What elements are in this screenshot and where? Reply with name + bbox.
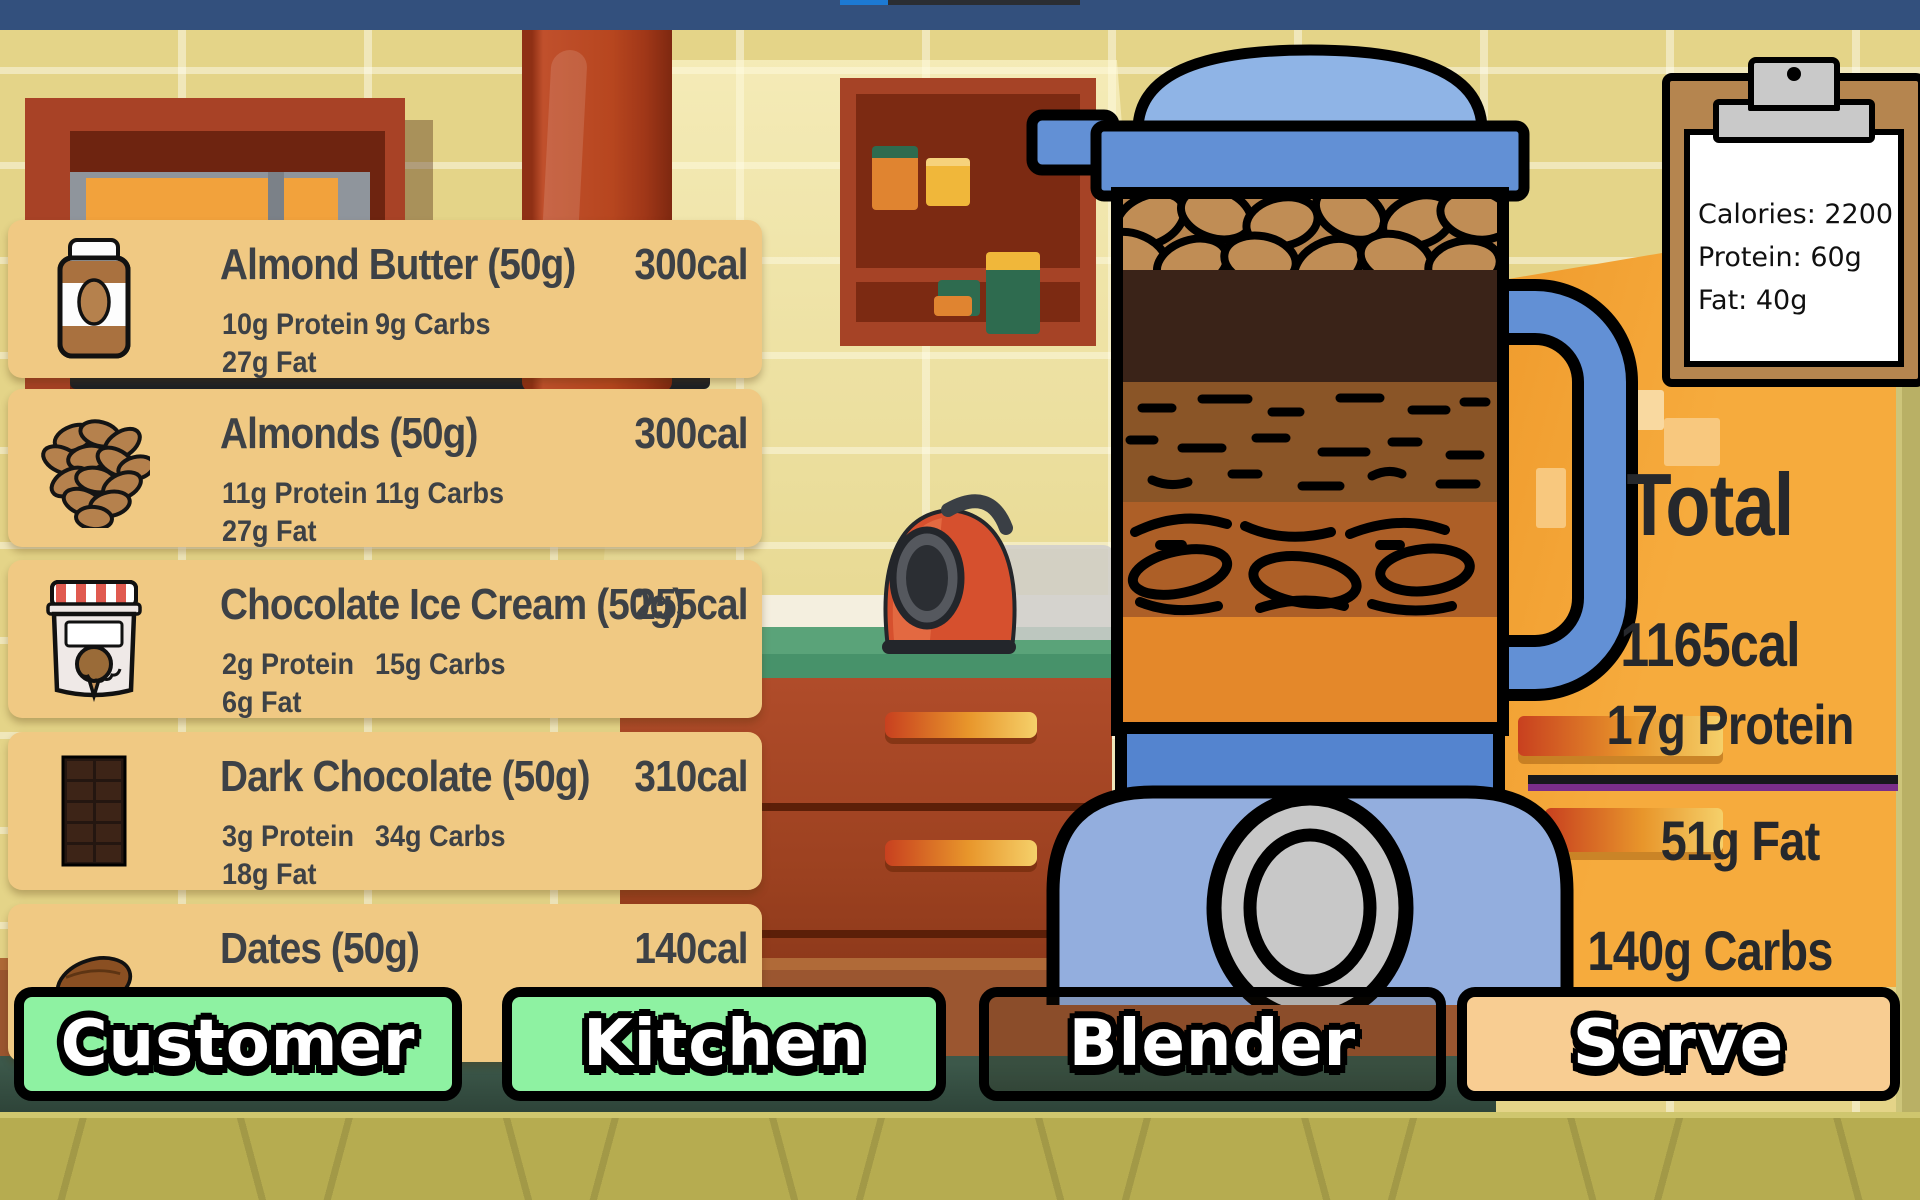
almond-butter-jar-icon xyxy=(38,232,150,366)
ingredient-name: Almonds (50g) xyxy=(220,409,477,459)
floor xyxy=(0,1112,1920,1200)
ingredient-card-chocolate-ice-cream[interactable]: Chocolate Ice Cream (50g) 255cal 2g Prot… xyxy=(8,560,762,718)
blender-tab-button[interactable]: Blender xyxy=(979,987,1446,1101)
shelf-jar-orange xyxy=(872,146,918,210)
order-calories: Calories: 2200 xyxy=(1698,193,1893,236)
clipboard-clip-top xyxy=(1748,57,1840,111)
shelf-cup-yellow xyxy=(926,158,970,206)
totals-calories: 1165cal xyxy=(1567,612,1853,680)
ingredient-calories: 310cal xyxy=(635,752,748,802)
ingredient-protein: 3g Protein xyxy=(222,820,375,854)
ingredient-name: Dark Chocolate (50g) xyxy=(220,752,590,802)
ingredient-card-almonds[interactable]: Almonds (50g) 300cal 11g Protein11g Carb… xyxy=(8,389,762,547)
ingredient-card-almond-butter[interactable]: Almond Butter (50g) 300cal 10g Protein9g… xyxy=(8,220,762,378)
totals-protein: 17g Protein xyxy=(1570,690,1889,760)
lid-dome xyxy=(1138,50,1482,128)
kitchen-tab-button[interactable]: Kitchen xyxy=(502,987,946,1101)
ingredient-name: Dates (50g) xyxy=(220,924,419,974)
ingredient-carbs: 34g Carbs xyxy=(375,820,506,853)
ingredient-card-dark-chocolate[interactable]: Dark Chocolate (50g) 310cal 3g Protein34… xyxy=(8,732,762,890)
ingredient-protein: 2g Protein xyxy=(222,648,375,682)
order-clipboard: Calories: 2200 Protein: 60g Fat: 40g xyxy=(1662,73,1920,387)
blender-collar xyxy=(1121,728,1499,794)
serve-button-label: Serve xyxy=(1573,1007,1784,1081)
blender-tab-label: Blender xyxy=(1069,1007,1356,1081)
ingredient-protein: 10g Protein xyxy=(222,308,375,342)
customer-tab-label: Customer xyxy=(61,1007,416,1081)
shelf-box-orange xyxy=(934,296,972,316)
kettle xyxy=(870,470,1030,660)
clip-hole xyxy=(1787,67,1801,81)
ingredient-fat: 6g Fat xyxy=(222,686,302,720)
ingredient-carbs: 9g Carbs xyxy=(375,308,491,341)
ingredient-name: Chocolate Ice Cream (50g) xyxy=(220,580,684,630)
ingredient-fat: 27g Fat xyxy=(222,346,317,380)
base-dial-inner xyxy=(1250,835,1370,981)
ingredient-calories: 255cal xyxy=(635,580,748,630)
totals-fat: 51g Fat xyxy=(1589,806,1891,876)
chocolate-bar-icon xyxy=(38,744,150,878)
ice-cream-tub-icon xyxy=(38,572,150,706)
ingredient-calories: 300cal xyxy=(635,240,748,290)
lid-band xyxy=(1096,126,1524,196)
serve-button[interactable]: Serve xyxy=(1457,987,1900,1101)
game-screen: Total 1165cal 17g Protein 51g Fat 140g C… xyxy=(0,0,1920,1200)
top-progress-dark xyxy=(888,0,1080,5)
ingredient-fat: 18g Fat xyxy=(222,858,317,892)
order-fat: Fat: 40g xyxy=(1698,279,1893,322)
ingredient-fat: 27g Fat xyxy=(222,515,317,549)
ingredient-name: Almond Butter (50g) xyxy=(220,240,575,290)
top-progress-blue xyxy=(840,0,888,5)
almonds-pile-icon xyxy=(38,401,150,535)
ingredient-calories: 140cal xyxy=(635,924,748,974)
order-protein: Protein: 60g xyxy=(1698,236,1893,279)
drawer-handle xyxy=(885,712,1037,738)
ingredient-carbs: 11g Carbs xyxy=(375,477,504,510)
ingredient-carbs: 15g Carbs xyxy=(375,648,506,681)
drawer-handle xyxy=(885,840,1037,866)
kitchen-tab-label: Kitchen xyxy=(583,1007,865,1081)
customer-tab-button[interactable]: Customer xyxy=(14,987,462,1101)
blender xyxy=(1020,40,1640,1005)
layer-dark-chocolate xyxy=(1117,270,1503,382)
ingredient-protein: 11g Protein xyxy=(222,477,375,511)
totals-carbs: 140g Carbs xyxy=(1534,916,1887,986)
totals-title: Total xyxy=(1584,455,1836,555)
ingredient-calories: 300cal xyxy=(635,409,748,459)
